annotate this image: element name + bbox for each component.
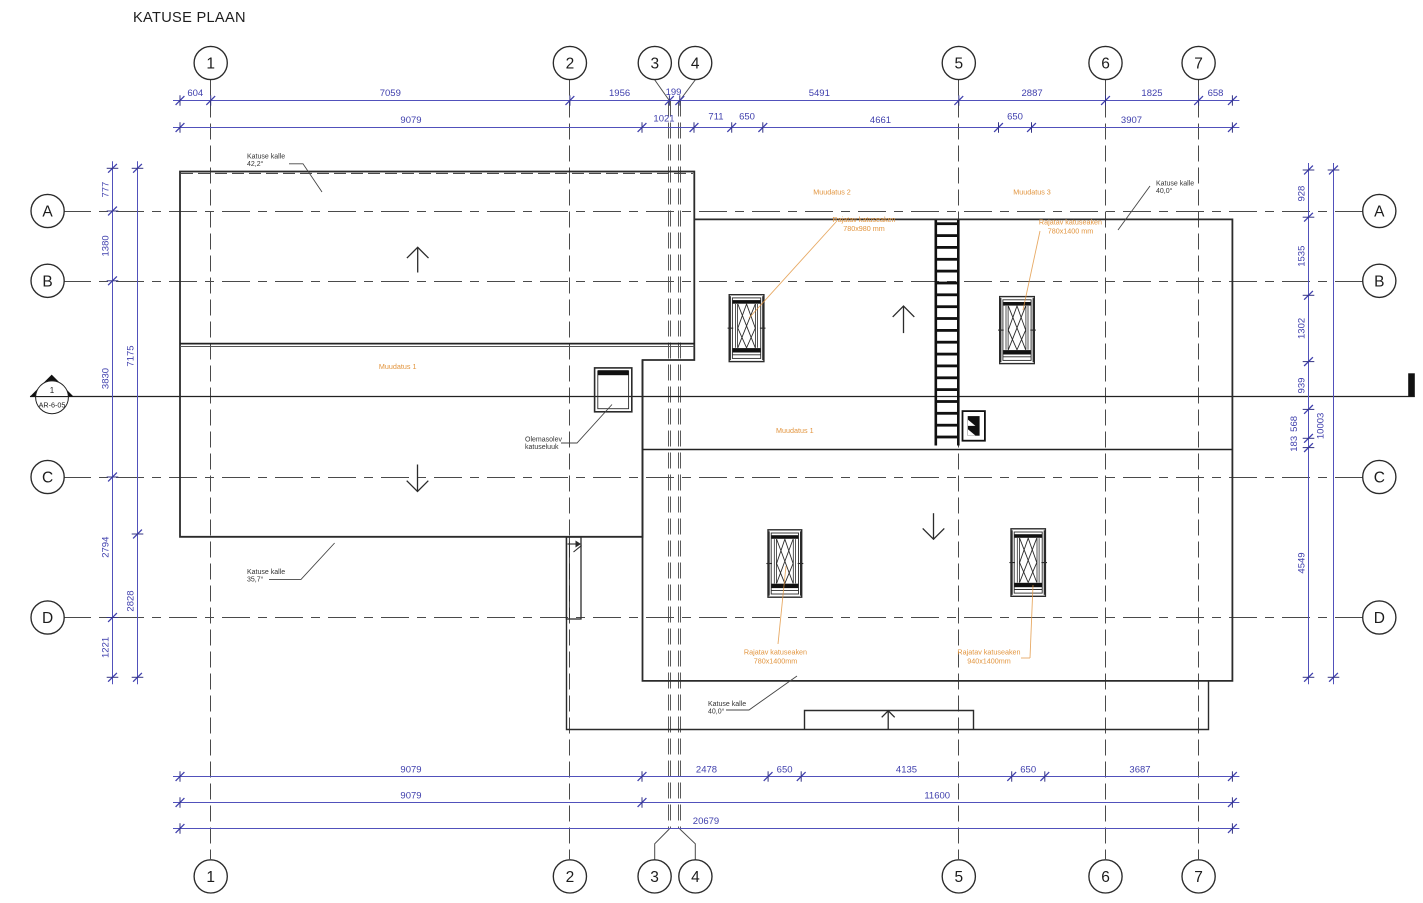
svg-text:katuseluuk: katuseluuk <box>525 444 559 451</box>
svg-text:940x1400mm: 940x1400mm <box>967 657 1011 666</box>
svg-text:780x1400 mm: 780x1400 mm <box>1048 227 1094 236</box>
svg-text:4: 4 <box>691 56 700 73</box>
svg-text:3: 3 <box>650 869 659 886</box>
svg-text:939: 939 <box>1296 378 1307 394</box>
svg-text:Muudatus 1: Muudatus 1 <box>379 362 417 371</box>
svg-text:6: 6 <box>1101 56 1110 73</box>
svg-text:4549: 4549 <box>1296 552 1307 573</box>
svg-text:Olemasolev: Olemasolev <box>525 437 562 444</box>
svg-text:9079: 9079 <box>400 764 421 775</box>
svg-text:928: 928 <box>1296 186 1307 202</box>
svg-text:Muudatus 1: Muudatus 1 <box>776 426 814 435</box>
svg-text:C: C <box>42 470 53 487</box>
svg-text:711: 711 <box>708 111 723 122</box>
svg-text:1: 1 <box>206 56 215 73</box>
svg-text:1380: 1380 <box>100 235 111 256</box>
svg-text:1021: 1021 <box>653 114 674 125</box>
svg-text:4: 4 <box>691 869 700 886</box>
svg-text:1302: 1302 <box>1296 318 1307 339</box>
svg-text:2478: 2478 <box>696 764 717 775</box>
svg-text:650: 650 <box>739 111 755 122</box>
svg-text:D: D <box>42 610 53 627</box>
svg-text:20679: 20679 <box>693 816 719 827</box>
svg-text:2887: 2887 <box>1022 88 1043 99</box>
svg-text:650: 650 <box>1020 764 1036 775</box>
svg-text:3: 3 <box>650 56 659 73</box>
svg-text:650: 650 <box>1007 111 1023 122</box>
svg-text:7: 7 <box>1194 56 1203 73</box>
svg-text:10003: 10003 <box>1316 413 1327 439</box>
svg-text:2828: 2828 <box>125 590 136 611</box>
svg-text:3907: 3907 <box>1121 115 1142 126</box>
svg-text:4135: 4135 <box>896 764 917 775</box>
svg-text:Katuse kalle: Katuse kalle <box>1156 181 1194 188</box>
svg-text:1956: 1956 <box>609 88 630 99</box>
svg-text:A: A <box>1374 204 1385 221</box>
svg-text:Rajatav katuseaken: Rajatav katuseaken <box>744 648 807 657</box>
svg-text:Muudatus 2: Muudatus 2 <box>813 188 851 197</box>
svg-text:658: 658 <box>1208 88 1224 99</box>
svg-text:2: 2 <box>566 56 575 73</box>
svg-text:Rajatav katuseaken: Rajatav katuseaken <box>957 648 1020 657</box>
svg-text:A: A <box>42 204 53 221</box>
svg-text:Katuse kalle: Katuse kalle <box>247 154 285 161</box>
svg-text:11600: 11600 <box>924 790 950 801</box>
svg-text:1: 1 <box>50 386 55 395</box>
svg-text:780x1400mm: 780x1400mm <box>754 657 798 666</box>
svg-text:B: B <box>1374 273 1384 290</box>
svg-text:9079: 9079 <box>400 115 421 126</box>
svg-text:1: 1 <box>206 869 215 886</box>
svg-text:Katuse kalle: Katuse kalle <box>247 569 285 576</box>
svg-text:777: 777 <box>100 182 111 198</box>
svg-text:C: C <box>1374 470 1385 487</box>
svg-text:604: 604 <box>187 88 203 99</box>
svg-text:7175: 7175 <box>125 345 136 366</box>
svg-text:2: 2 <box>566 869 575 886</box>
svg-text:Rajatav katuseaken: Rajatav katuseaken <box>1039 218 1102 227</box>
svg-text:AR-6-05: AR-6-05 <box>39 401 66 410</box>
svg-text:35,7°: 35,7° <box>247 576 264 584</box>
svg-text:42,2°: 42,2° <box>247 160 264 168</box>
svg-text:9079: 9079 <box>400 790 421 801</box>
svg-text:199: 199 <box>666 87 682 98</box>
svg-text:5491: 5491 <box>809 88 830 99</box>
svg-text:183: 183 <box>1289 436 1300 452</box>
svg-text:Katuse kalle: Katuse kalle <box>708 701 746 708</box>
svg-text:1221: 1221 <box>100 637 111 658</box>
svg-text:5: 5 <box>954 869 963 886</box>
svg-text:Rajatav katuseaken: Rajatav katuseaken <box>832 215 895 224</box>
svg-text:650: 650 <box>777 764 793 775</box>
svg-text:6: 6 <box>1101 869 1110 886</box>
svg-text:B: B <box>42 273 52 290</box>
svg-text:4661: 4661 <box>870 115 891 126</box>
svg-text:40,0°: 40,0° <box>708 708 725 716</box>
svg-text:KATUSE PLAAN: KATUSE PLAAN <box>133 10 246 26</box>
svg-text:3687: 3687 <box>1129 764 1150 775</box>
svg-text:Muudatus 3: Muudatus 3 <box>1013 188 1051 197</box>
svg-text:7: 7 <box>1194 869 1203 886</box>
svg-text:780x980 mm: 780x980 mm <box>843 224 885 233</box>
svg-text:7059: 7059 <box>380 88 401 99</box>
svg-text:D: D <box>1374 610 1385 627</box>
svg-text:5: 5 <box>954 56 963 73</box>
svg-text:1825: 1825 <box>1141 88 1162 99</box>
svg-text:568: 568 <box>1289 416 1300 432</box>
svg-text:2794: 2794 <box>100 537 111 558</box>
svg-text:40,0°: 40,0° <box>1156 187 1173 195</box>
svg-text:3830: 3830 <box>100 368 111 389</box>
svg-text:1535: 1535 <box>1296 246 1307 267</box>
